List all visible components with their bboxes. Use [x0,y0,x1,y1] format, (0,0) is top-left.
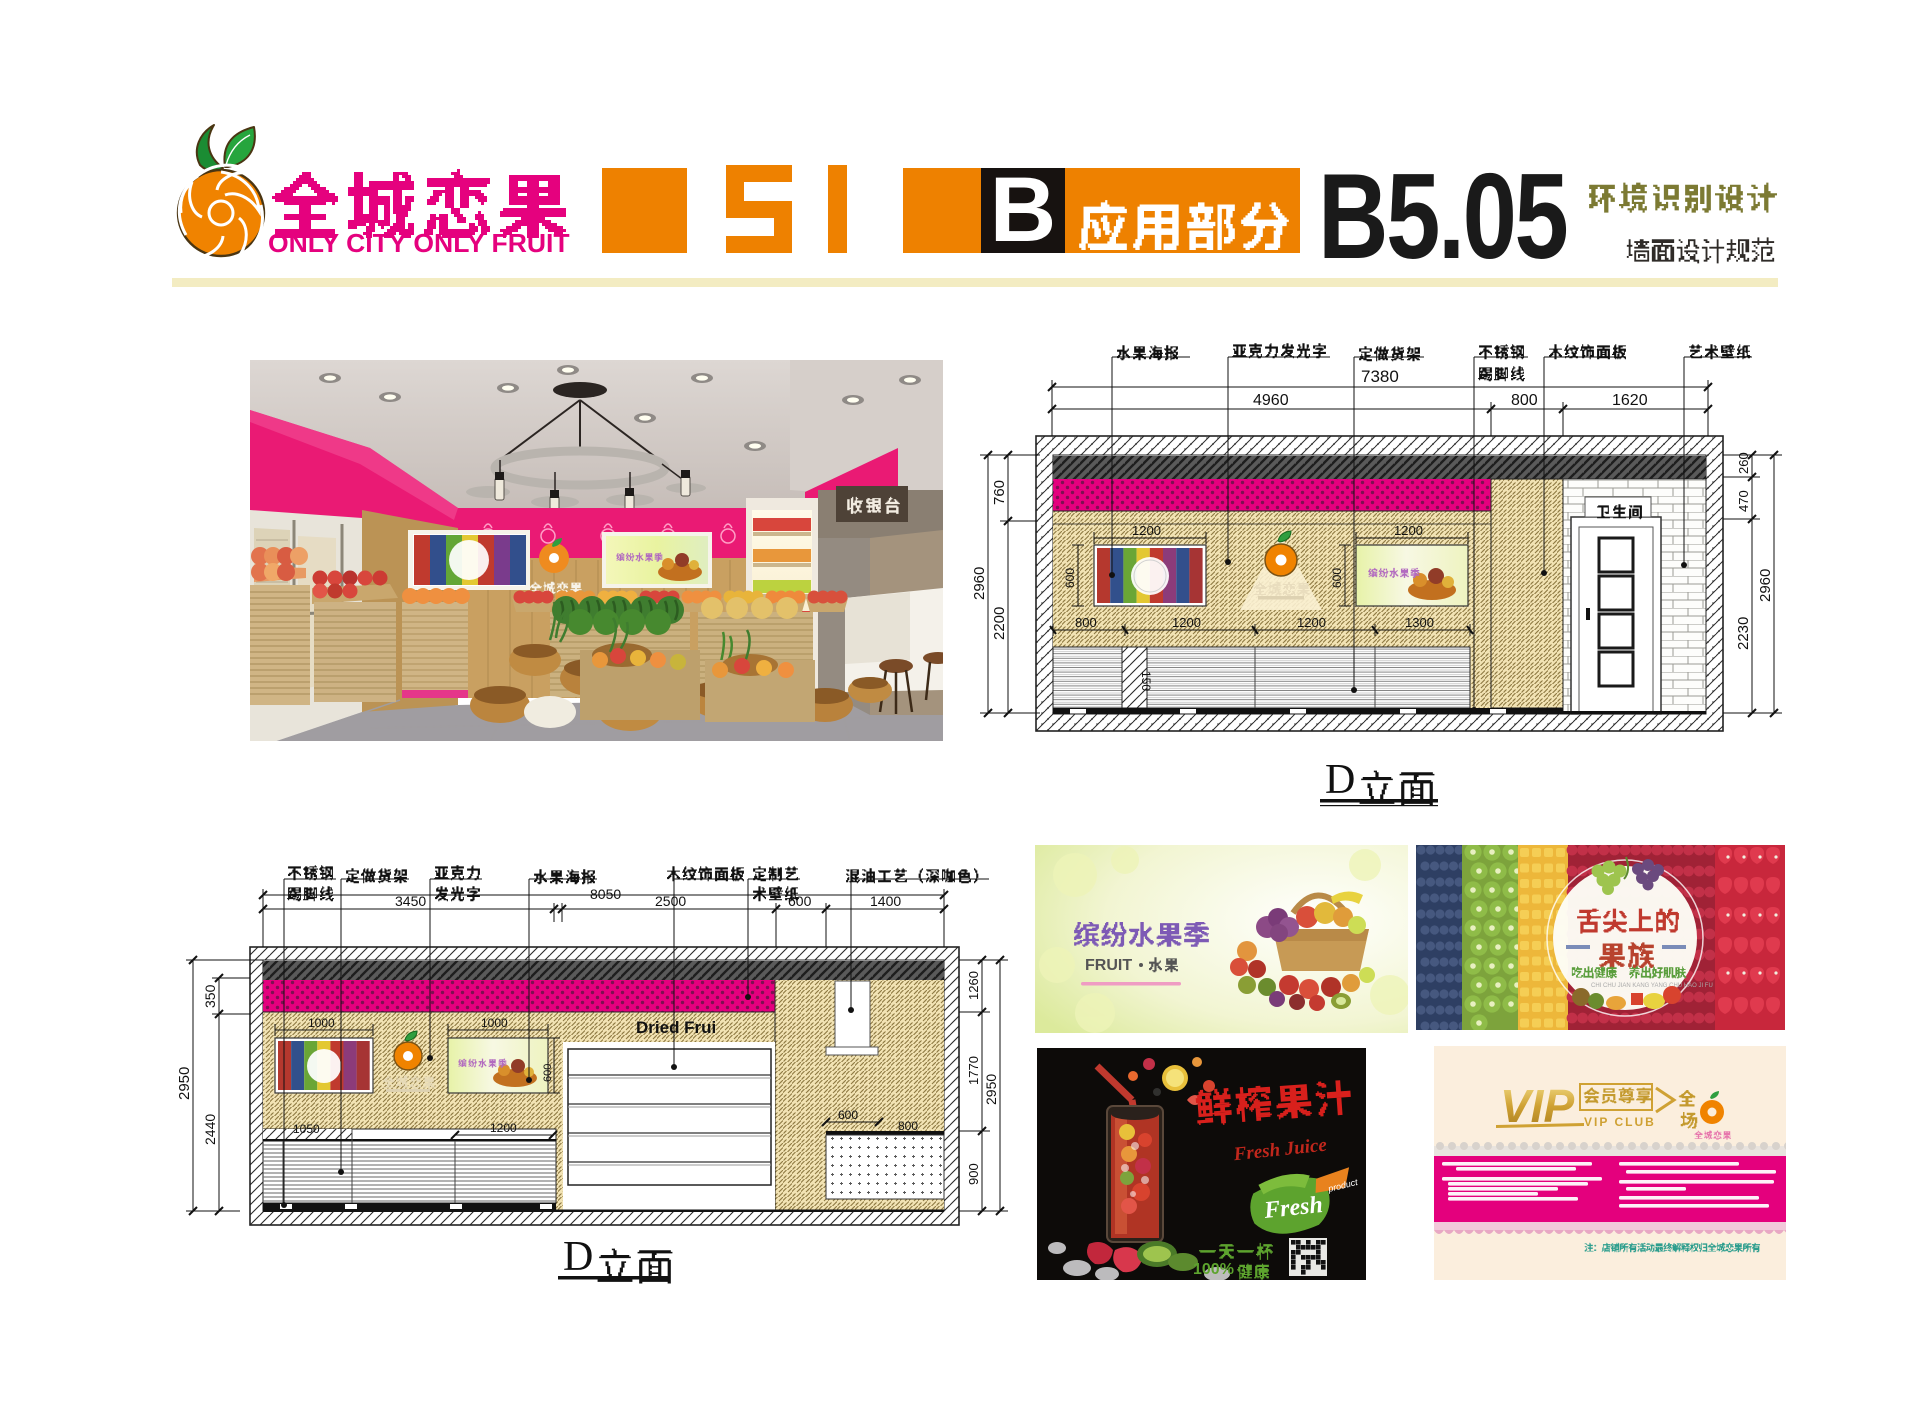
svg-text:1200: 1200 [490,1121,517,1135]
svg-text:1200: 1200 [1132,523,1161,538]
svg-text:1620: 1620 [1612,392,1648,409]
svg-text:800: 800 [1075,615,1097,630]
svg-text:1000: 1000 [308,1016,335,1030]
svg-text:1260: 1260 [966,971,981,1000]
svg-text:2960: 2960 [1757,569,1774,602]
svg-text:D: D [563,1234,593,1280]
svg-text:VIP CLUB: VIP CLUB [1584,1115,1656,1129]
svg-text:260: 260 [1736,452,1751,474]
svg-text:800: 800 [898,1119,918,1133]
svg-text:600: 600 [1063,568,1077,588]
svg-text:2950: 2950 [983,1074,999,1105]
svg-text:1400: 1400 [870,893,901,909]
svg-text:600: 600 [1330,568,1344,588]
svg-text:7380: 7380 [1361,367,1399,386]
svg-text:1200: 1200 [1297,615,1326,630]
svg-text:1050: 1050 [293,1122,320,1136]
svg-text:800: 800 [1511,392,1538,409]
svg-text:2200: 2200 [991,607,1008,640]
svg-text:CHI CHU JIAN KANG YANG CHU HAO: CHI CHU JIAN KANG YANG CHU HAO JI FU [1591,983,1713,989]
svg-text:100%: 100% [1193,1261,1234,1278]
svg-text:1770: 1770 [966,1056,981,1085]
svg-text:8050: 8050 [590,886,621,902]
svg-text:Dried Frui: Dried Frui [636,1018,716,1037]
svg-text:350: 350 [202,984,218,1008]
svg-text:600: 600 [542,1064,554,1082]
svg-text:600: 600 [838,1108,858,1122]
svg-text:1000: 1000 [481,1016,508,1030]
svg-text:760: 760 [991,480,1008,505]
svg-text:150: 150 [1139,671,1153,691]
svg-text:3450: 3450 [395,893,426,909]
svg-text:1200: 1200 [1172,615,1201,630]
svg-text:4960: 4960 [1253,392,1289,409]
svg-text:2500: 2500 [655,893,686,909]
svg-text:1200: 1200 [1394,523,1423,538]
svg-text:600: 600 [788,893,812,909]
svg-text:2960: 2960 [971,567,988,600]
svg-text:2440: 2440 [202,1114,218,1145]
svg-text:900: 900 [966,1163,981,1185]
svg-text:1300: 1300 [1405,615,1434,630]
svg-text:2950: 2950 [176,1067,193,1100]
svg-text:D: D [1325,757,1355,803]
svg-text:FRUIT: FRUIT [1085,957,1132,974]
svg-text:2230: 2230 [1735,617,1752,650]
svg-text:470: 470 [1736,490,1751,512]
